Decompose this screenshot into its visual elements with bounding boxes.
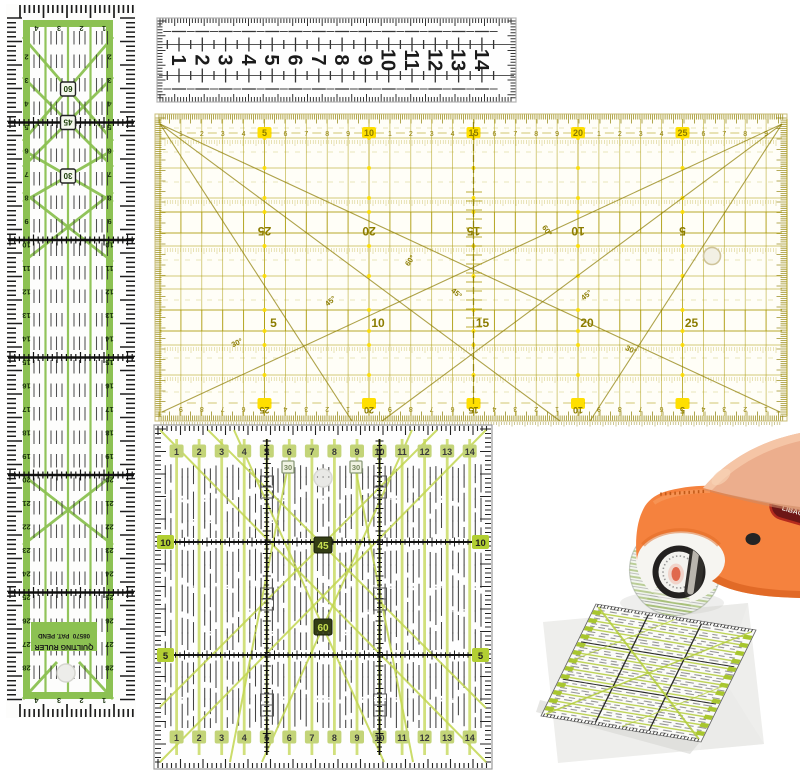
svg-text:13: 13 [22,311,30,320]
svg-text:2: 2 [534,405,538,412]
svg-text:21: 21 [105,499,113,508]
svg-text:6: 6 [492,131,496,138]
svg-text:5: 5 [478,651,484,662]
svg-text:8: 8 [107,194,111,203]
svg-text:1: 1 [174,733,179,743]
svg-text:3: 3 [107,76,111,85]
svg-text:16: 16 [105,382,113,391]
svg-text:3: 3 [219,733,224,743]
svg-text:2: 2 [743,405,747,412]
svg-text:1: 1 [102,696,106,705]
svg-text:6: 6 [284,54,306,65]
svg-text:17: 17 [22,405,30,414]
svg-text:28: 28 [22,664,30,673]
svg-text:2: 2 [24,53,28,62]
svg-text:15: 15 [22,358,30,367]
svg-text:19: 19 [105,452,113,461]
svg-text:25: 25 [22,593,30,602]
svg-text:11: 11 [106,264,114,273]
svg-text:7: 7 [304,131,308,138]
svg-text:2: 2 [190,54,212,65]
svg-text:9: 9 [354,447,359,457]
svg-text:7: 7 [24,170,28,179]
svg-text:5: 5 [679,224,686,238]
svg-text:10: 10 [475,538,486,549]
svg-text:4: 4 [242,131,246,138]
svg-text:10: 10 [573,405,583,415]
svg-text:6: 6 [107,147,111,156]
svg-text:8: 8 [200,405,204,412]
svg-text:2: 2 [200,131,204,138]
svg-text:10: 10 [160,538,171,549]
svg-text:2: 2 [197,733,202,743]
svg-text:17: 17 [105,405,113,414]
svg-text:2: 2 [325,405,329,412]
svg-text:22: 22 [105,523,113,532]
svg-text:7: 7 [107,170,111,179]
svg-text:25: 25 [685,316,699,330]
svg-text:8: 8 [618,405,622,412]
svg-text:30: 30 [284,463,292,472]
svg-text:7: 7 [722,131,726,138]
svg-text:18: 18 [22,429,30,438]
svg-text:26: 26 [105,617,113,626]
svg-text:11: 11 [397,447,407,457]
svg-text:23: 23 [105,546,113,555]
svg-text:25: 25 [258,224,272,238]
svg-text:28: 28 [105,664,113,673]
svg-text:13: 13 [442,447,452,457]
svg-text:14: 14 [105,335,114,344]
svg-text:12: 12 [423,49,445,71]
svg-text:4: 4 [242,447,247,457]
svg-text:6: 6 [24,147,28,156]
svg-text:3: 3 [24,76,28,85]
svg-text:7: 7 [221,405,225,412]
svg-text:7: 7 [430,405,434,412]
svg-text:14: 14 [465,733,475,743]
svg-text:60: 60 [63,84,72,93]
svg-text:5: 5 [24,123,28,132]
svg-text:6: 6 [287,447,292,457]
svg-text:7: 7 [513,131,517,138]
svg-text:13: 13 [442,733,452,743]
svg-text:12: 12 [105,288,113,297]
svg-text:10: 10 [377,49,399,71]
svg-text:20: 20 [364,405,374,415]
svg-text:1: 1 [388,131,392,138]
svg-text:11: 11 [400,49,422,70]
svg-text:14: 14 [465,447,475,457]
svg-text:8: 8 [330,54,352,65]
svg-text:25: 25 [259,405,269,415]
svg-text:5: 5 [680,405,685,415]
svg-text:4: 4 [660,131,664,138]
svg-text:13: 13 [105,311,113,320]
svg-text:8: 8 [409,405,413,412]
svg-text:10: 10 [371,316,385,330]
svg-text:9: 9 [24,217,28,226]
svg-text:9: 9 [388,405,392,412]
svg-text:25: 25 [105,593,113,602]
svg-text:5: 5 [270,316,277,330]
svg-text:6: 6 [242,405,246,412]
svg-text:27: 27 [22,640,30,649]
svg-text:2: 2 [197,447,202,457]
svg-text:10: 10 [571,224,585,238]
svg-text:3: 3 [304,405,308,412]
svg-text:3: 3 [57,696,61,705]
svg-text:3: 3 [722,405,726,412]
svg-text:22: 22 [22,523,30,532]
svg-text:QUILTING RULER: QUILTING RULER [35,643,94,650]
svg-text:1: 1 [346,405,350,412]
svg-text:21: 21 [22,499,30,508]
svg-text:12: 12 [420,733,430,743]
svg-text:1: 1 [102,24,106,33]
svg-text:24: 24 [22,570,31,579]
svg-text:3: 3 [219,447,224,457]
svg-text:1: 1 [597,131,601,138]
svg-text:7: 7 [309,447,314,457]
svg-text:7: 7 [307,54,329,65]
svg-text:45: 45 [317,541,329,552]
svg-text:16: 16 [22,382,30,391]
svg-text:20: 20 [362,224,376,238]
svg-text:2: 2 [79,24,83,33]
svg-text:30: 30 [63,171,72,180]
svg-text:6: 6 [287,733,292,743]
svg-text:5: 5 [163,651,169,662]
svg-text:5: 5 [260,54,282,65]
svg-text:24: 24 [105,570,114,579]
svg-text:26: 26 [22,617,30,626]
svg-text:14: 14 [22,335,31,344]
svg-text:3: 3 [513,405,517,412]
svg-text:3: 3 [430,131,434,138]
svg-text:20: 20 [22,476,30,485]
svg-text:15: 15 [105,358,113,367]
svg-text:8: 8 [743,131,747,138]
svg-text:8: 8 [325,131,329,138]
svg-text:6: 6 [660,405,664,412]
svg-text:4: 4 [492,405,496,412]
svg-text:27: 27 [105,640,113,649]
svg-text:9: 9 [179,405,183,412]
svg-text:10: 10 [22,241,30,250]
svg-text:4: 4 [283,405,287,412]
svg-text:2: 2 [79,696,83,705]
svg-text:9: 9 [353,54,375,65]
svg-text:4: 4 [242,733,247,743]
svg-text:9: 9 [354,733,359,743]
svg-text:2: 2 [107,53,111,62]
svg-text:11: 11 [397,733,407,743]
svg-text:7: 7 [309,733,314,743]
svg-text:11: 11 [23,264,31,273]
svg-text:5: 5 [107,123,111,132]
svg-text:1: 1 [555,405,559,412]
svg-text:4: 4 [237,54,259,66]
svg-text:4: 4 [701,405,705,412]
svg-text:3: 3 [57,24,61,33]
svg-text:20: 20 [105,476,113,485]
svg-text:08570 PAT. PEND: 08570 PAT. PEND [37,632,90,639]
svg-text:4: 4 [451,131,455,138]
svg-text:1: 1 [174,447,179,457]
svg-text:18: 18 [105,429,113,438]
svg-text:23: 23 [22,546,30,555]
svg-text:10: 10 [105,241,113,250]
svg-text:9: 9 [555,131,559,138]
svg-text:8: 8 [332,733,337,743]
svg-text:8: 8 [24,194,28,203]
svg-text:6: 6 [701,131,705,138]
svg-text:3: 3 [221,131,225,138]
svg-text:14: 14 [470,49,492,72]
svg-text:13: 13 [447,49,469,71]
svg-text:3: 3 [639,131,643,138]
svg-text:19: 19 [22,452,30,461]
svg-text:9: 9 [346,131,350,138]
svg-text:30: 30 [352,463,360,472]
svg-text:6: 6 [283,131,287,138]
svg-text:9: 9 [107,217,111,226]
svg-text:12: 12 [22,288,30,297]
svg-text:3: 3 [214,54,236,65]
svg-text:2: 2 [409,131,413,138]
svg-text:8: 8 [332,447,337,457]
svg-text:1: 1 [167,54,189,65]
svg-text:45: 45 [63,118,72,127]
svg-text:6: 6 [451,405,455,412]
svg-text:7: 7 [639,405,643,412]
svg-text:8: 8 [534,131,538,138]
svg-text:2: 2 [618,131,622,138]
svg-text:12: 12 [420,447,430,457]
